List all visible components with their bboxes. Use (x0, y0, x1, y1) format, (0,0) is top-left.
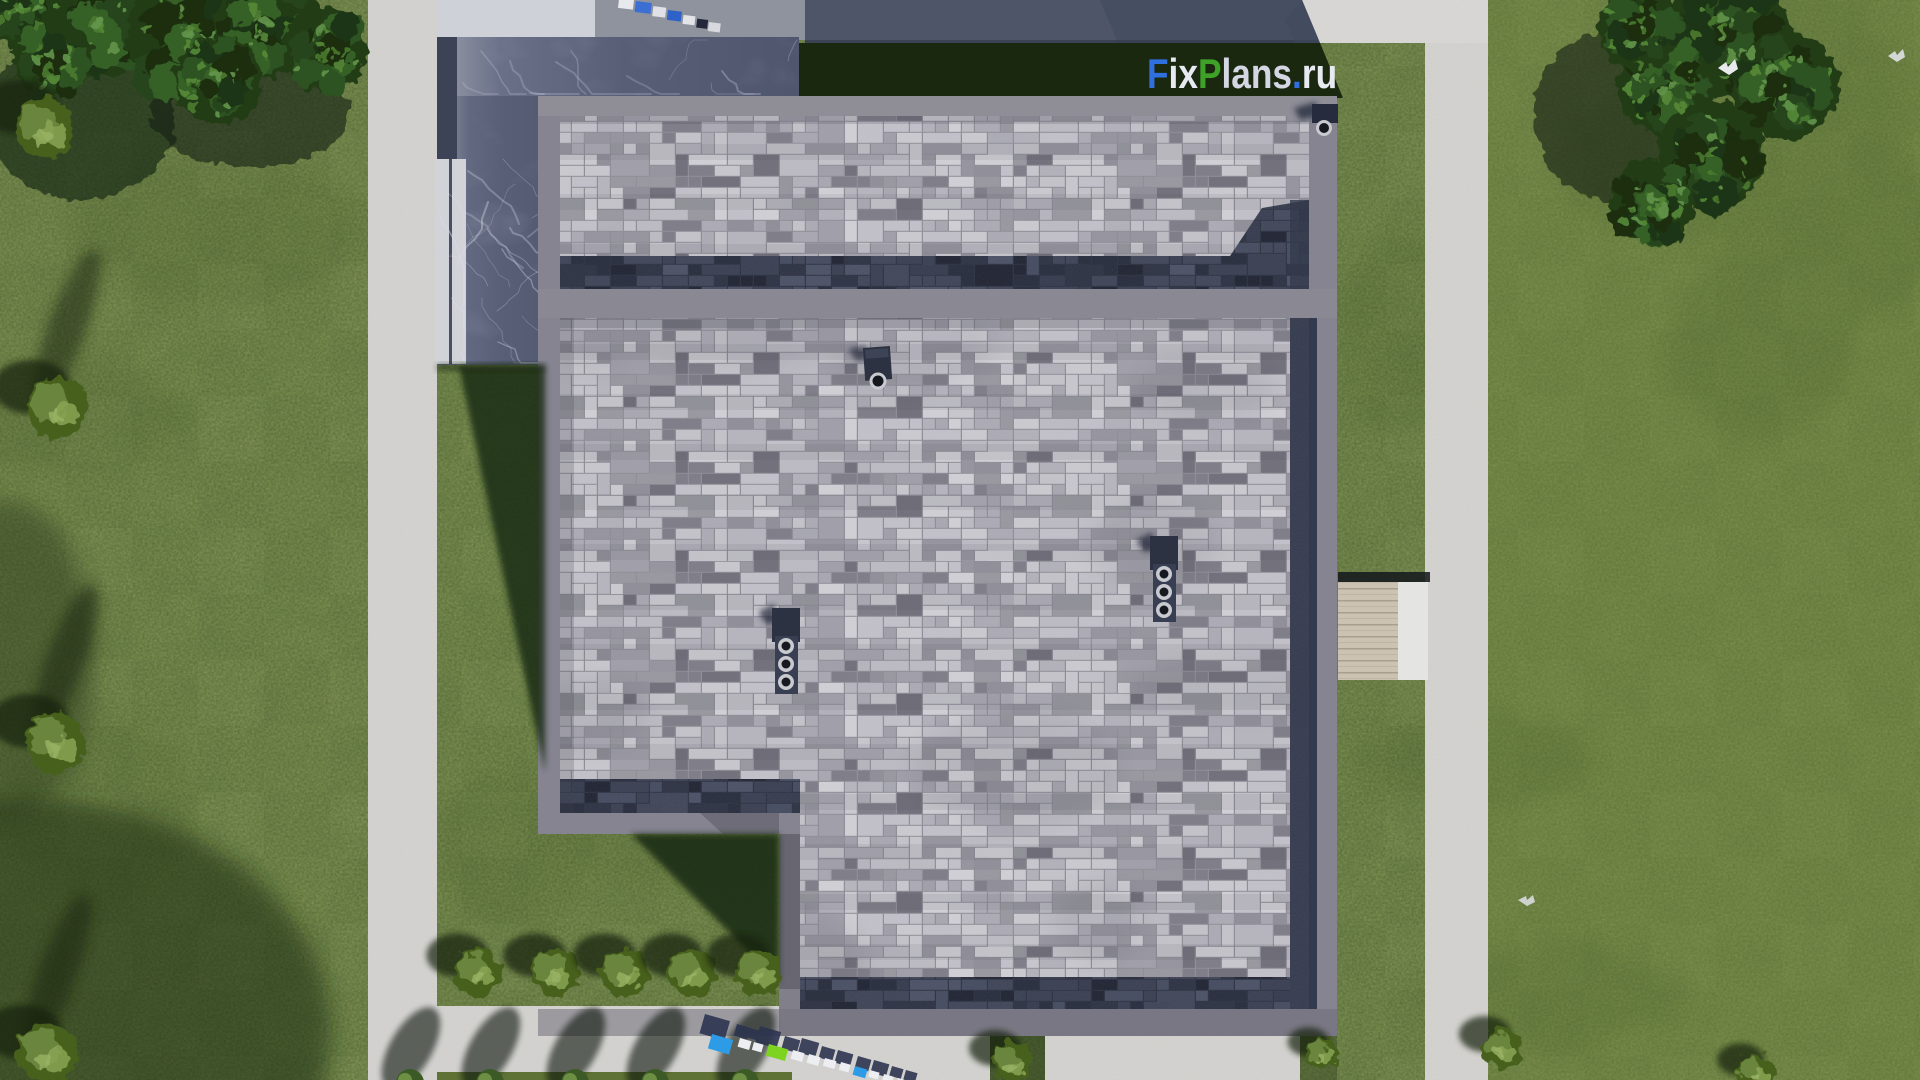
svg-text:FixPlans.ru: FixPlans.ru (1147, 51, 1337, 98)
